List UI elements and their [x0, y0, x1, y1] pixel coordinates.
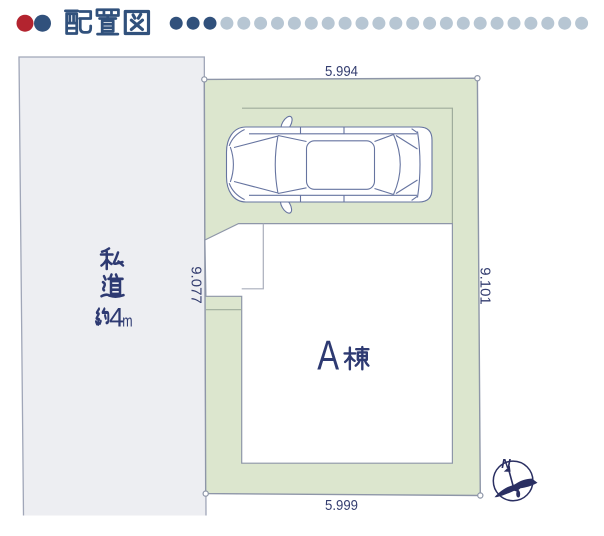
svg-text:A: A: [317, 332, 340, 379]
svg-text:m: m: [122, 313, 132, 331]
svg-text:5.994: 5.994: [325, 63, 358, 80]
svg-text:5.999: 5.999: [325, 497, 358, 514]
svg-text:9.077: 9.077: [187, 266, 204, 304]
svg-text:9.101: 9.101: [477, 267, 494, 305]
